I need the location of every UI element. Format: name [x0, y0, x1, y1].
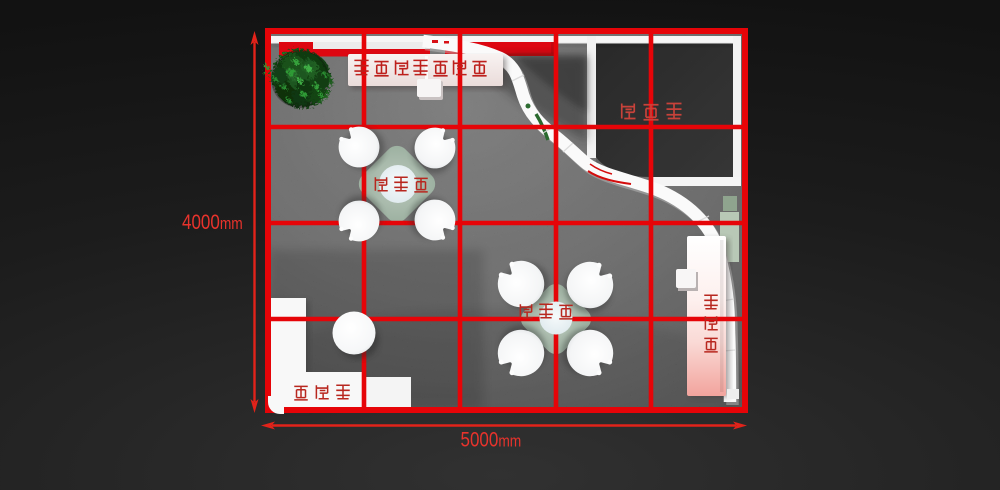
svg-text:4000mm: 4000mm [182, 211, 243, 234]
svg-text:5000mm: 5000mm [461, 429, 522, 452]
